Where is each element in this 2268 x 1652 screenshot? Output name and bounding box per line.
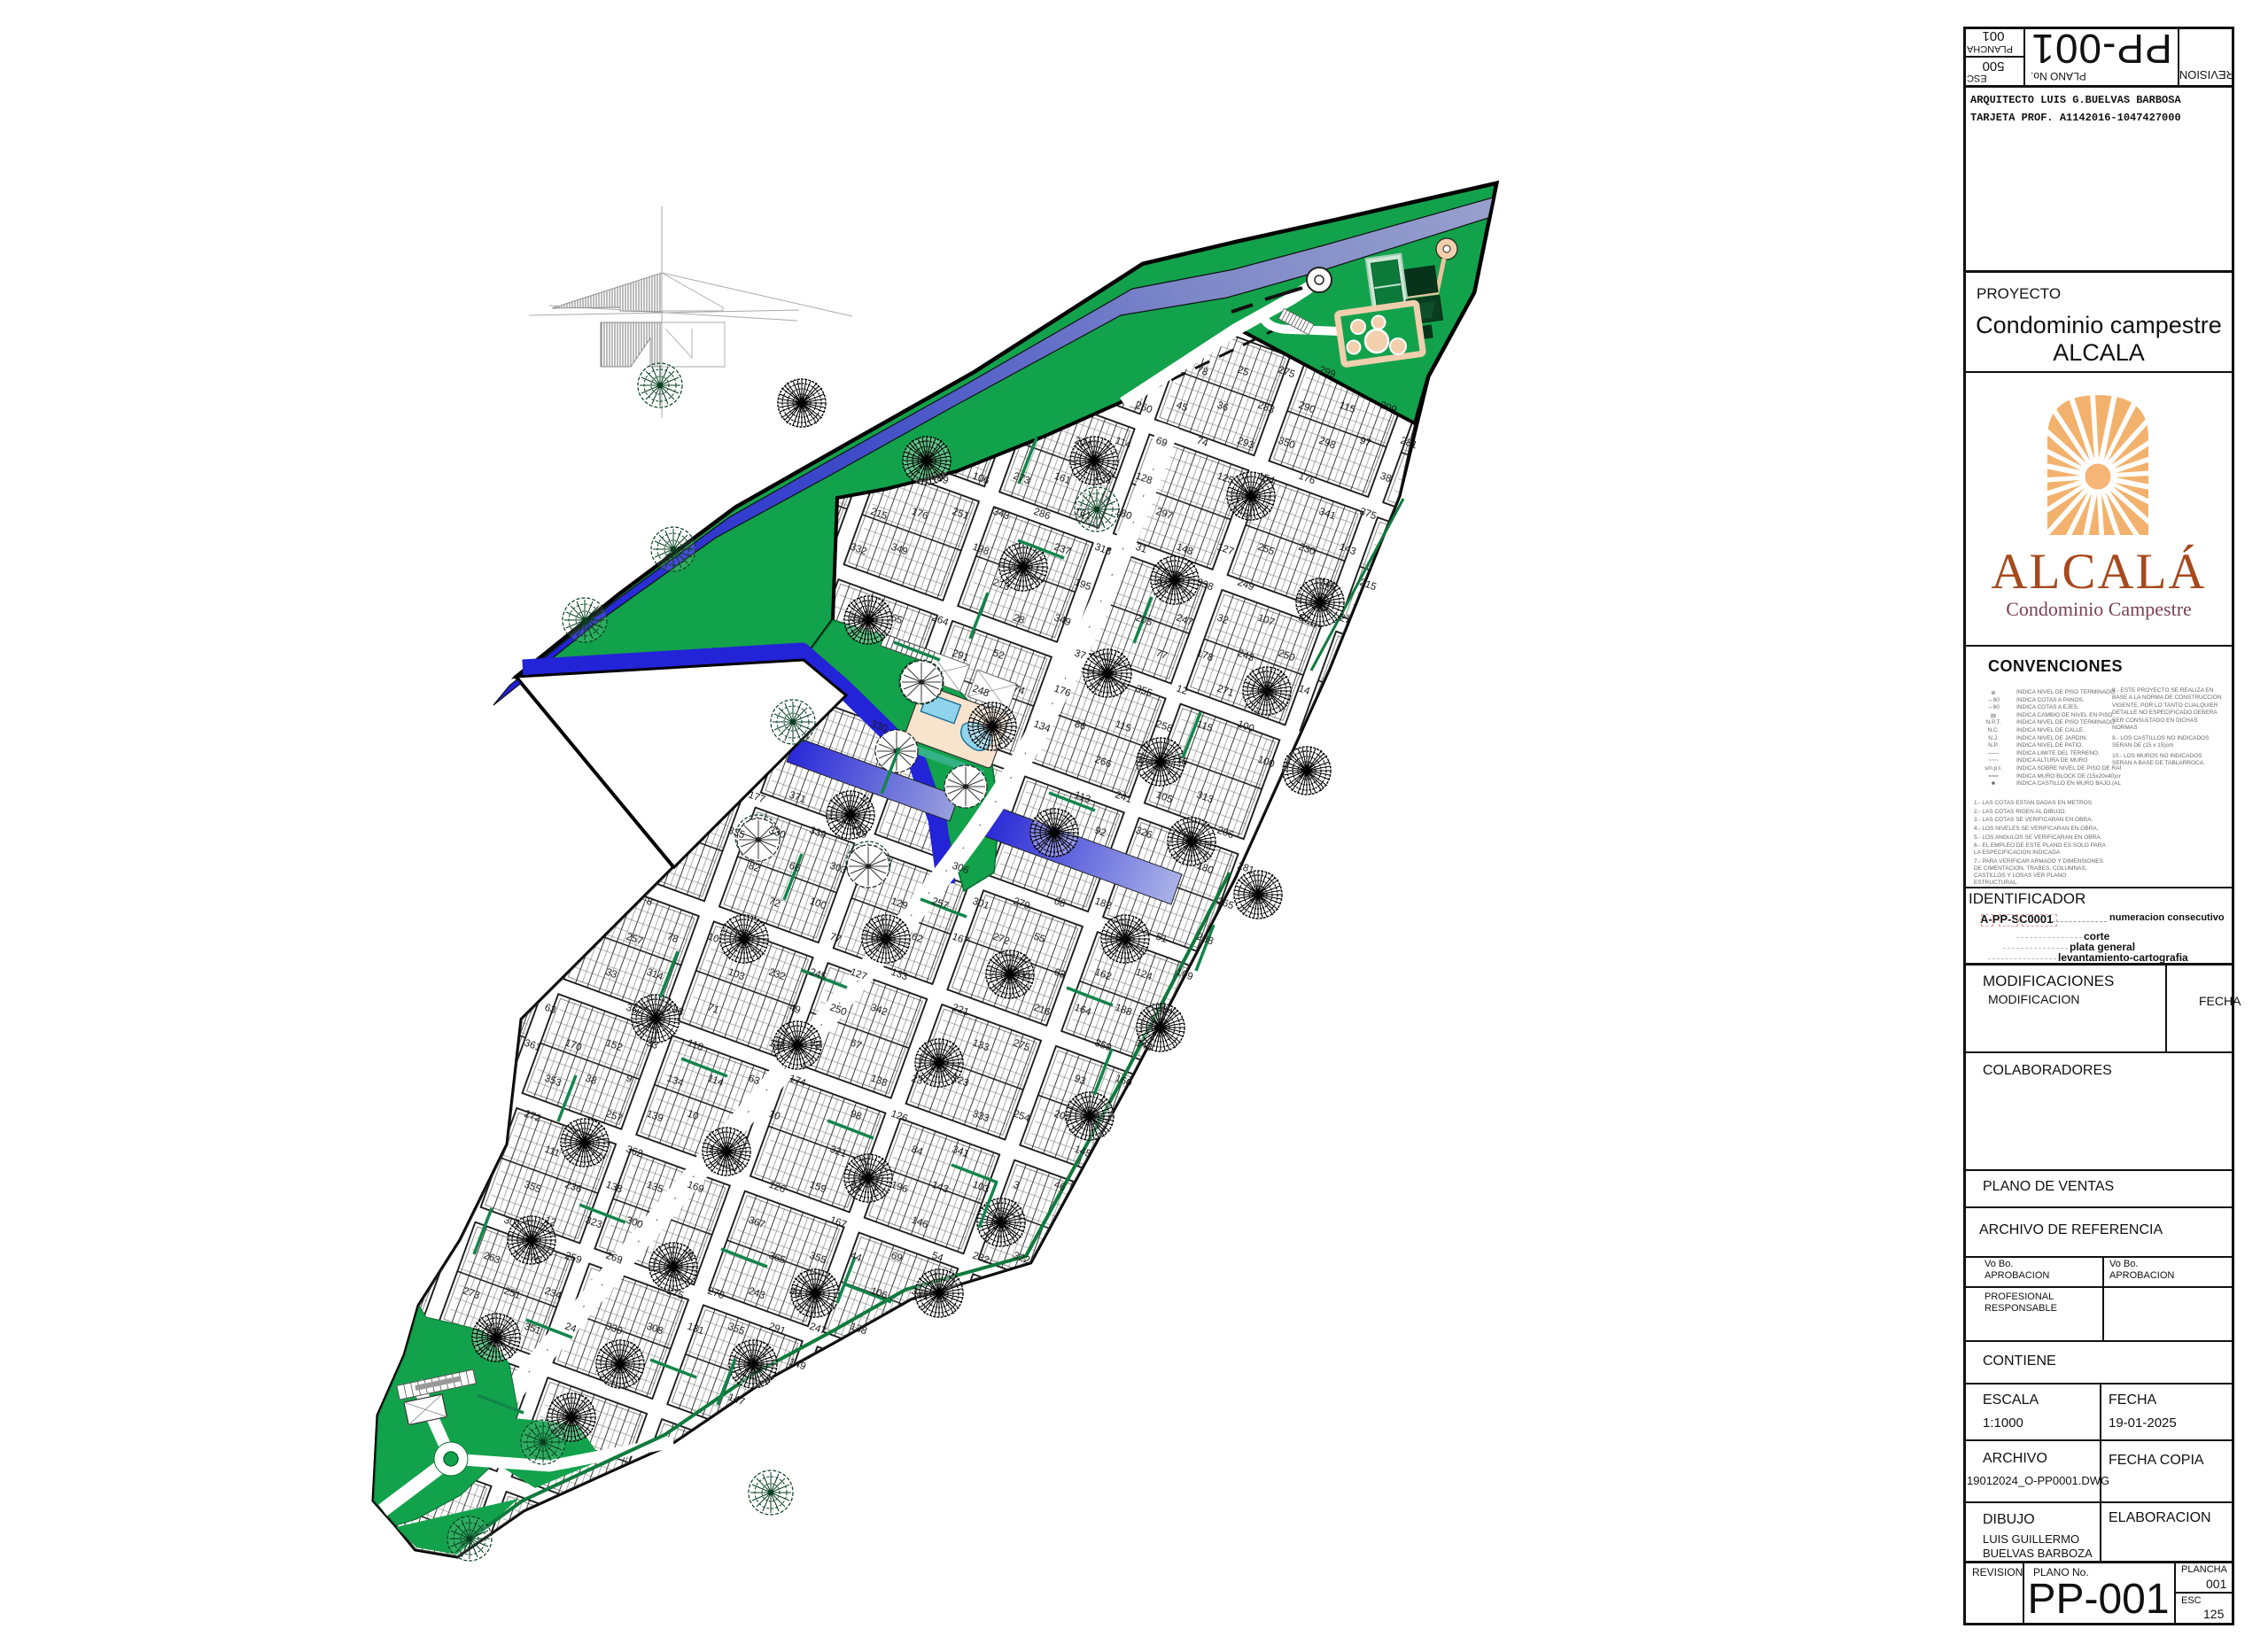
svg-text:ALCALÁ: ALCALÁ [1991,544,2206,600]
svg-text:Condominio Campestre: Condominio Campestre [2006,598,2192,620]
